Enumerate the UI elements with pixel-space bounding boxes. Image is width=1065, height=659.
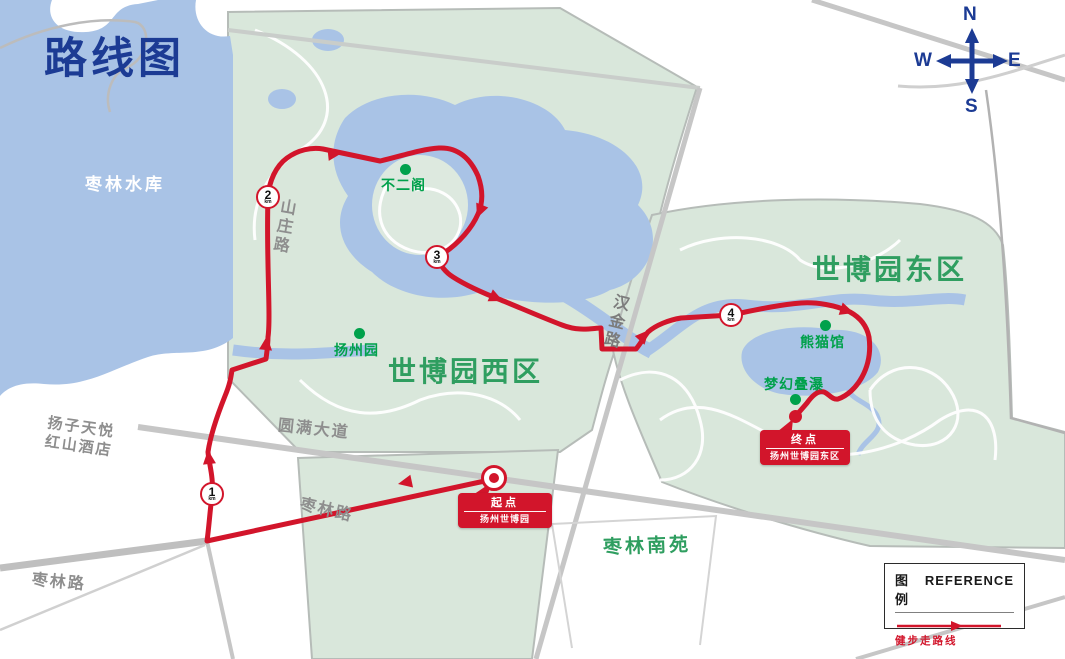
km-marker-1-number: 1 bbox=[209, 487, 216, 497]
compass-east-label: E bbox=[1008, 50, 1021, 72]
poi-dot-yangzhou-garden bbox=[354, 328, 365, 339]
finish-badge-divider bbox=[766, 448, 844, 449]
legend-box: 图例 REFERENCE 健步走路线 bbox=[884, 563, 1025, 629]
road-zaolin-west bbox=[0, 541, 207, 568]
poi-dot-dream-waterfall bbox=[790, 394, 801, 405]
km-marker-3-number: 3 bbox=[434, 250, 441, 260]
km-marker-4-number: 4 bbox=[728, 308, 735, 318]
legend-title-zh: 图例 bbox=[895, 570, 916, 608]
poi-dot-panda-house bbox=[820, 320, 831, 331]
start-badge-title: 起点 bbox=[461, 497, 549, 509]
compass-rose bbox=[936, 28, 1008, 94]
legend-route-arrow-icon bbox=[951, 621, 963, 631]
start-badge-divider bbox=[464, 511, 546, 512]
legend-route-sample bbox=[895, 619, 1005, 632]
km-marker-3-unit: km bbox=[433, 260, 440, 265]
start-point-marker-center bbox=[489, 473, 499, 483]
start-badge-subtitle: 扬州世博园 bbox=[461, 514, 549, 525]
finish-badge: 终点 扬州世博园东区 bbox=[760, 430, 850, 465]
legend-title-en: REFERENCE bbox=[925, 573, 1014, 588]
km-marker-2: 2 km bbox=[256, 185, 280, 209]
poi-label-buerge: 不二阁 bbox=[381, 175, 426, 195]
legend-title: 图例 REFERENCE bbox=[895, 570, 1014, 613]
km-marker-4-unit: km bbox=[727, 318, 734, 323]
compass-south-label: S bbox=[965, 96, 978, 118]
legend-route-label: 健步走路线 bbox=[895, 633, 1014, 648]
finish-badge-subtitle: 扬州世博园东区 bbox=[763, 451, 847, 462]
region-label-zaolin-south: 枣林南苑 bbox=[603, 529, 692, 559]
map-canvas bbox=[0, 0, 1065, 659]
compass-north-label: N bbox=[963, 4, 977, 26]
poi-dot-buerge bbox=[400, 164, 411, 175]
km-marker-2-number: 2 bbox=[265, 190, 272, 200]
route-map: 路线图 枣林水库 世博园西区 世博园东区 枣林南苑 山庄路 汉金路 圆满大道 枣… bbox=[0, 0, 1065, 659]
road-label-zaolin-southwest: 枣林路 bbox=[31, 566, 87, 595]
reservoir-label: 枣林水库 bbox=[85, 170, 165, 195]
road-south-of-junction bbox=[207, 541, 233, 659]
poi-label-panda-house: 熊猫馆 bbox=[800, 332, 845, 352]
poi-label-dream-waterfall: 梦幻叠瀑 bbox=[764, 374, 824, 394]
start-badge: 起点 扬州世博园 bbox=[458, 493, 552, 528]
start-point-marker bbox=[481, 465, 507, 491]
km-marker-1: 1 km bbox=[200, 482, 224, 506]
pond-1 bbox=[268, 89, 296, 109]
poi-label-yangzhou-garden: 扬州园 bbox=[334, 340, 379, 360]
compass-west-label: W bbox=[914, 50, 932, 72]
finish-point-marker bbox=[789, 410, 802, 423]
region-label-expo-east: 世博园东区 bbox=[812, 248, 967, 288]
page-title: 路线图 bbox=[44, 24, 185, 86]
km-marker-2-unit: km bbox=[264, 200, 271, 205]
region-label-expo-west: 世博园西区 bbox=[388, 350, 543, 390]
finish-badge-title: 终点 bbox=[763, 434, 847, 446]
km-marker-1-unit: km bbox=[208, 497, 215, 502]
route-arrow-2 bbox=[202, 449, 216, 464]
km-marker-3: 3 km bbox=[425, 245, 449, 269]
km-marker-4: 4 km bbox=[719, 303, 743, 327]
